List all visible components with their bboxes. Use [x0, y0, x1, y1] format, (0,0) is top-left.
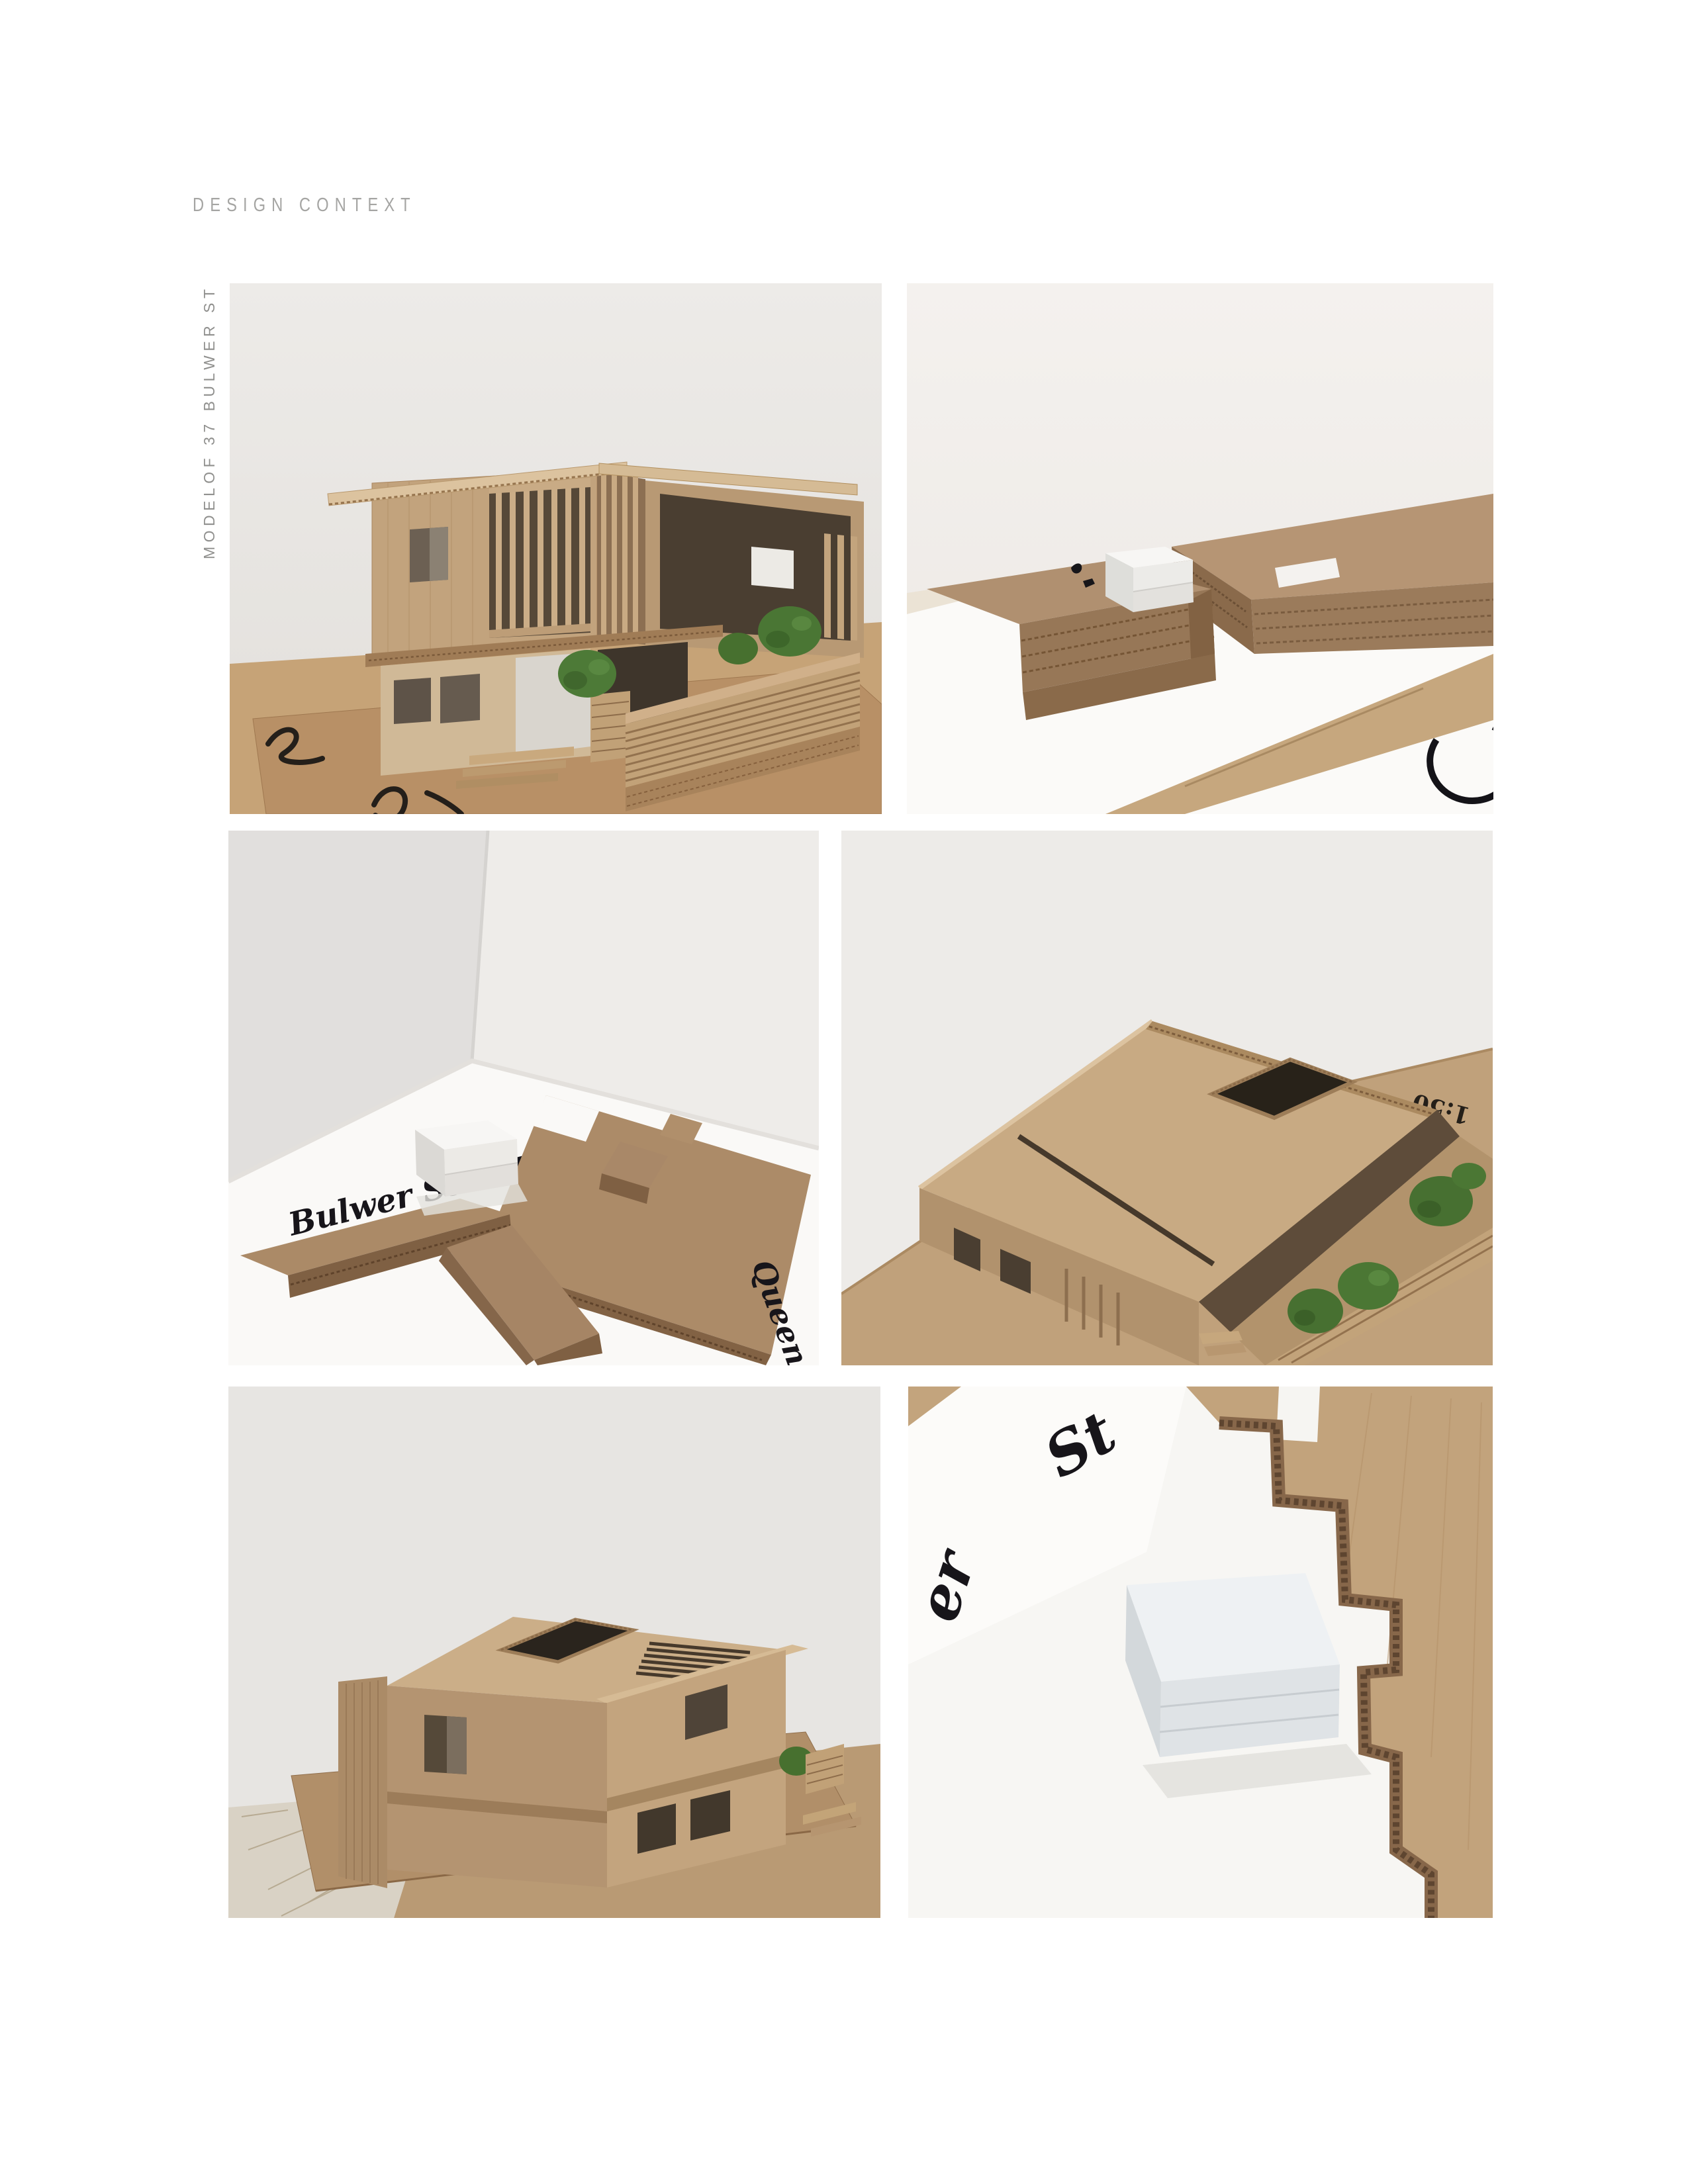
photo-model-front-perspective — [230, 283, 882, 814]
white-massing-blocks — [1105, 547, 1194, 612]
photo-model-rear-view — [228, 1387, 880, 1918]
photo-model-aerial-view: 1:50 — [841, 831, 1493, 1365]
tree — [758, 606, 821, 657]
tree — [1338, 1262, 1399, 1310]
house-model — [328, 462, 864, 811]
photo-massing-closeup: St er — [908, 1387, 1493, 1918]
tree — [558, 650, 616, 698]
page-title: DESIGN CONTEXT — [193, 195, 416, 216]
portfolio-page: DESIGN CONTEXT MODELOF 37 BULWER ST — [0, 0, 1688, 2184]
side-caption: MODELOF 37 BULWER ST — [201, 285, 218, 559]
photo-site-model-top-view: Bulwer Street — [228, 831, 819, 1365]
photo-site-model-eye-level — [907, 283, 1493, 814]
tree — [1288, 1289, 1343, 1334]
tree — [718, 633, 758, 664]
